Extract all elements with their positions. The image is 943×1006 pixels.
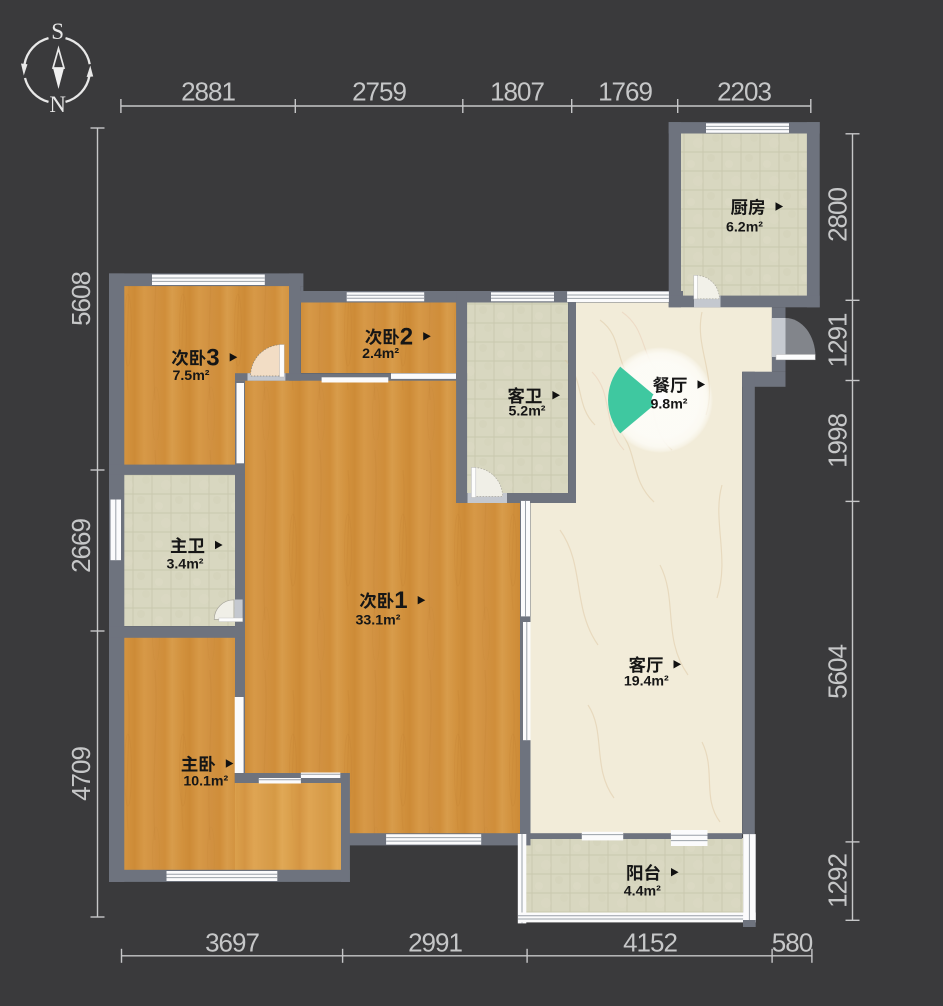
svg-text:5604: 5604 (823, 645, 853, 699)
svg-text:580: 580 (772, 928, 813, 958)
svg-text:2800: 2800 (823, 188, 853, 242)
svg-text:2203: 2203 (717, 77, 771, 107)
svg-text:S: S (51, 19, 64, 44)
svg-text:1: 1 (394, 587, 407, 614)
svg-text:2.4m²: 2.4m² (362, 346, 399, 362)
svg-text:6.2m²: 6.2m² (726, 220, 763, 236)
svg-text:2881: 2881 (181, 77, 235, 107)
svg-text:3697: 3697 (205, 928, 259, 958)
svg-text:33.1m²: 33.1m² (356, 613, 401, 629)
svg-text:4.4m²: 4.4m² (624, 883, 661, 899)
svg-text:4152: 4152 (623, 928, 677, 958)
svg-text:2669: 2669 (66, 519, 96, 573)
svg-text:9.8m²: 9.8m² (650, 397, 687, 413)
svg-text:7.5m²: 7.5m² (172, 368, 209, 384)
svg-text:2: 2 (400, 323, 413, 350)
svg-text:2991: 2991 (408, 928, 462, 958)
svg-text:19.4m²: 19.4m² (624, 674, 669, 690)
svg-text:N: N (49, 92, 66, 117)
svg-text:10.1m²: 10.1m² (183, 774, 228, 790)
svg-text:5.2m²: 5.2m² (508, 404, 545, 420)
svg-text:5608: 5608 (66, 272, 96, 326)
svg-text:1291: 1291 (823, 313, 853, 367)
svg-text:2759: 2759 (352, 77, 406, 107)
svg-text:3.4m²: 3.4m² (166, 557, 203, 573)
svg-text:1998: 1998 (823, 414, 853, 468)
svg-text:1292: 1292 (823, 854, 853, 908)
svg-text:1769: 1769 (598, 77, 652, 107)
svg-text:4709: 4709 (66, 747, 96, 801)
svg-text:1807: 1807 (490, 77, 544, 107)
